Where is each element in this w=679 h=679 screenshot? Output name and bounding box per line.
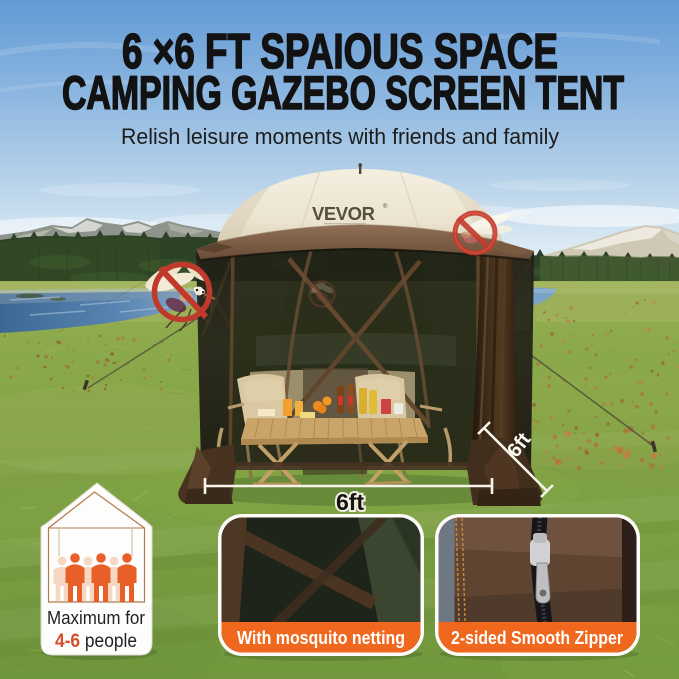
- svg-text:®: ®: [383, 203, 388, 210]
- svg-text:4-6 people: 4-6 people: [55, 631, 137, 652]
- svg-text:With mosquito netting: With mosquito netting: [237, 627, 405, 648]
- svg-text:Relish leisure moments with fr: Relish leisure moments with friends and …: [121, 124, 559, 149]
- svg-text:2-sided Smooth Zipper: 2-sided Smooth Zipper: [451, 627, 623, 648]
- svg-text:6ft: 6ft: [336, 489, 364, 515]
- svg-text:CAMPING GAZEBO SCREEN TENT: CAMPING GAZEBO SCREEN TENT: [62, 66, 624, 119]
- svg-text:VEVOR: VEVOR: [312, 203, 378, 224]
- svg-text:Maximum for: Maximum for: [47, 608, 145, 628]
